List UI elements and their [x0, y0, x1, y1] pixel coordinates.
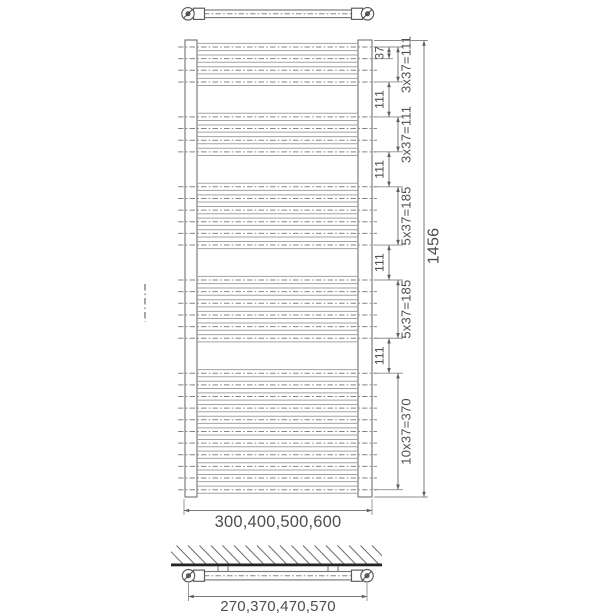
- dim-arrow: [387, 245, 391, 250]
- dim-arrow: [362, 595, 367, 599]
- group-dimension-label: 5x37=185: [399, 280, 414, 339]
- gap-dimension-label: 111: [373, 160, 387, 179]
- wall-hatch-line: [246, 546, 264, 565]
- dim-arrow: [422, 492, 426, 497]
- overall-height-label: 1456: [426, 228, 443, 264]
- wall-hatch-line: [372, 546, 390, 565]
- dim-arrow: [387, 53, 391, 58]
- radiator-dimension-drawing-sheet: 3x37=1113x37=1115x37=1855x37=18510x37=37…: [0, 0, 616, 616]
- dim-arrow: [387, 47, 391, 52]
- gap-dimension-label: 111: [373, 253, 387, 272]
- gap-dimension-label: 111: [373, 90, 387, 109]
- left-collector: [185, 40, 197, 497]
- dim-arrow: [189, 595, 194, 599]
- dim-arrow: [387, 182, 391, 187]
- dim-arrow: [387, 152, 391, 157]
- wall-hatch-line: [338, 546, 356, 565]
- wall-surface: [171, 564, 382, 567]
- dim-arrow: [396, 373, 400, 378]
- group-dimension-label: 3x37=111: [399, 36, 414, 93]
- wall-hatch-line: [211, 546, 229, 565]
- pitch-dimension-label: 37: [373, 46, 387, 60]
- wall-hatch-line: [361, 546, 379, 565]
- group-dimension-label: 5x37=185: [399, 186, 414, 245]
- radiator-technical-drawing: 3x37=1113x37=1115x37=1855x37=18510x37=37…: [0, 0, 616, 616]
- wall-hatch-line: [292, 546, 310, 565]
- dim-arrow: [387, 82, 391, 87]
- dim-arrow: [367, 509, 372, 513]
- wall-hatch-line: [257, 546, 275, 565]
- dim-arrow: [387, 112, 391, 117]
- wall-hatch-line: [188, 546, 206, 565]
- dim-arrow: [184, 509, 189, 513]
- wall-hatch-line: [303, 546, 321, 565]
- width-options-label: 300,400,500,600: [215, 513, 342, 531]
- wall-hatch-line: [177, 546, 195, 565]
- dim-arrow: [387, 275, 391, 280]
- bracket-spacing-label: 270,370,470,570: [220, 598, 336, 615]
- dim-arrow: [396, 485, 400, 490]
- dim-arrow: [422, 41, 426, 46]
- wall-hatch-line: [269, 546, 287, 565]
- top-view-left-fitting-bracket: [194, 8, 205, 19]
- wall-hatch-line: [165, 546, 183, 565]
- right-collector: [358, 40, 372, 497]
- wall-hatch-line: [223, 546, 241, 565]
- wall-hatch-line: [384, 546, 402, 565]
- wall-hatch-line: [234, 546, 252, 565]
- group-dimension-label: 10x37=370: [399, 398, 414, 465]
- dim-arrow: [387, 338, 391, 343]
- wall-hatch-line: [349, 546, 367, 565]
- wall-hatch-line: [200, 546, 218, 565]
- wall-hatch-line: [315, 546, 333, 565]
- wall-hatch-line: [280, 546, 298, 565]
- dim-arrow: [387, 368, 391, 373]
- gap-dimension-label: 111: [373, 346, 387, 365]
- group-dimension-label: 3x37=111: [399, 106, 414, 163]
- wall-hatch-line: [326, 546, 344, 565]
